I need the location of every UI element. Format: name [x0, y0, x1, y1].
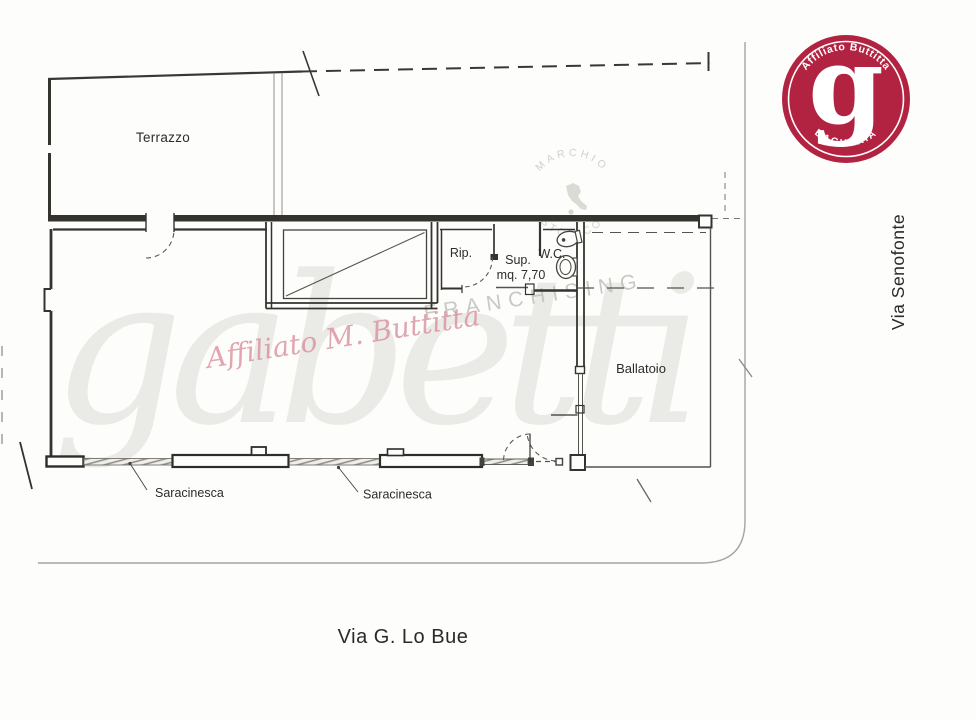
brand-script-watermark-text: gabetti: [52, 233, 695, 471]
floor-plan-svg: gabetti FRANCHISING MARCHIO STORICO: [0, 0, 976, 720]
terrazzo-label: Terrazzo: [136, 130, 190, 145]
marchio-storico-seal: MARCHIO STORICO: [533, 147, 611, 240]
saracinesca-shutter: [484, 459, 528, 465]
masonry-pier: [173, 455, 289, 467]
sup-label-line2: mq. 7,70: [497, 268, 546, 282]
scanned-floor-plan-page: gabetti FRANCHISING MARCHIO STORICO: [0, 0, 976, 720]
rip-label: Rip.: [450, 246, 472, 260]
entrance-pillar: [571, 455, 586, 470]
sup-label-line1: Sup.: [505, 253, 531, 267]
street-label-via-g-lo-bue: Via G. Lo Bue: [338, 626, 469, 648]
gabetti-script-watermark: gabetti: [52, 233, 695, 471]
wall-column: [699, 216, 712, 228]
left-wall: [45, 229, 52, 456]
masonry-pier: [380, 455, 482, 467]
saracinesca-label-left: Saracinesca: [155, 486, 224, 500]
saracinesca-shutter: [84, 459, 172, 466]
seal-top-text: MARCHIO: [533, 147, 611, 174]
saracinesca-label-right: Saracinesca: [363, 488, 432, 502]
gabetti-logo: Affiliato Buttitta g BAGHERIA: [782, 23, 910, 163]
ballatoio-label: Ballatoio: [616, 361, 666, 376]
saracinesca-shutter: [290, 459, 380, 466]
wc-label: W.C.: [538, 247, 565, 261]
italy-sicily-dot: [568, 209, 573, 214]
svg-text:MARCHIO: MARCHIO: [533, 147, 611, 174]
italy-map-icon: [566, 183, 587, 210]
street-label-via-senofonte: Via Senofonte: [888, 214, 908, 330]
